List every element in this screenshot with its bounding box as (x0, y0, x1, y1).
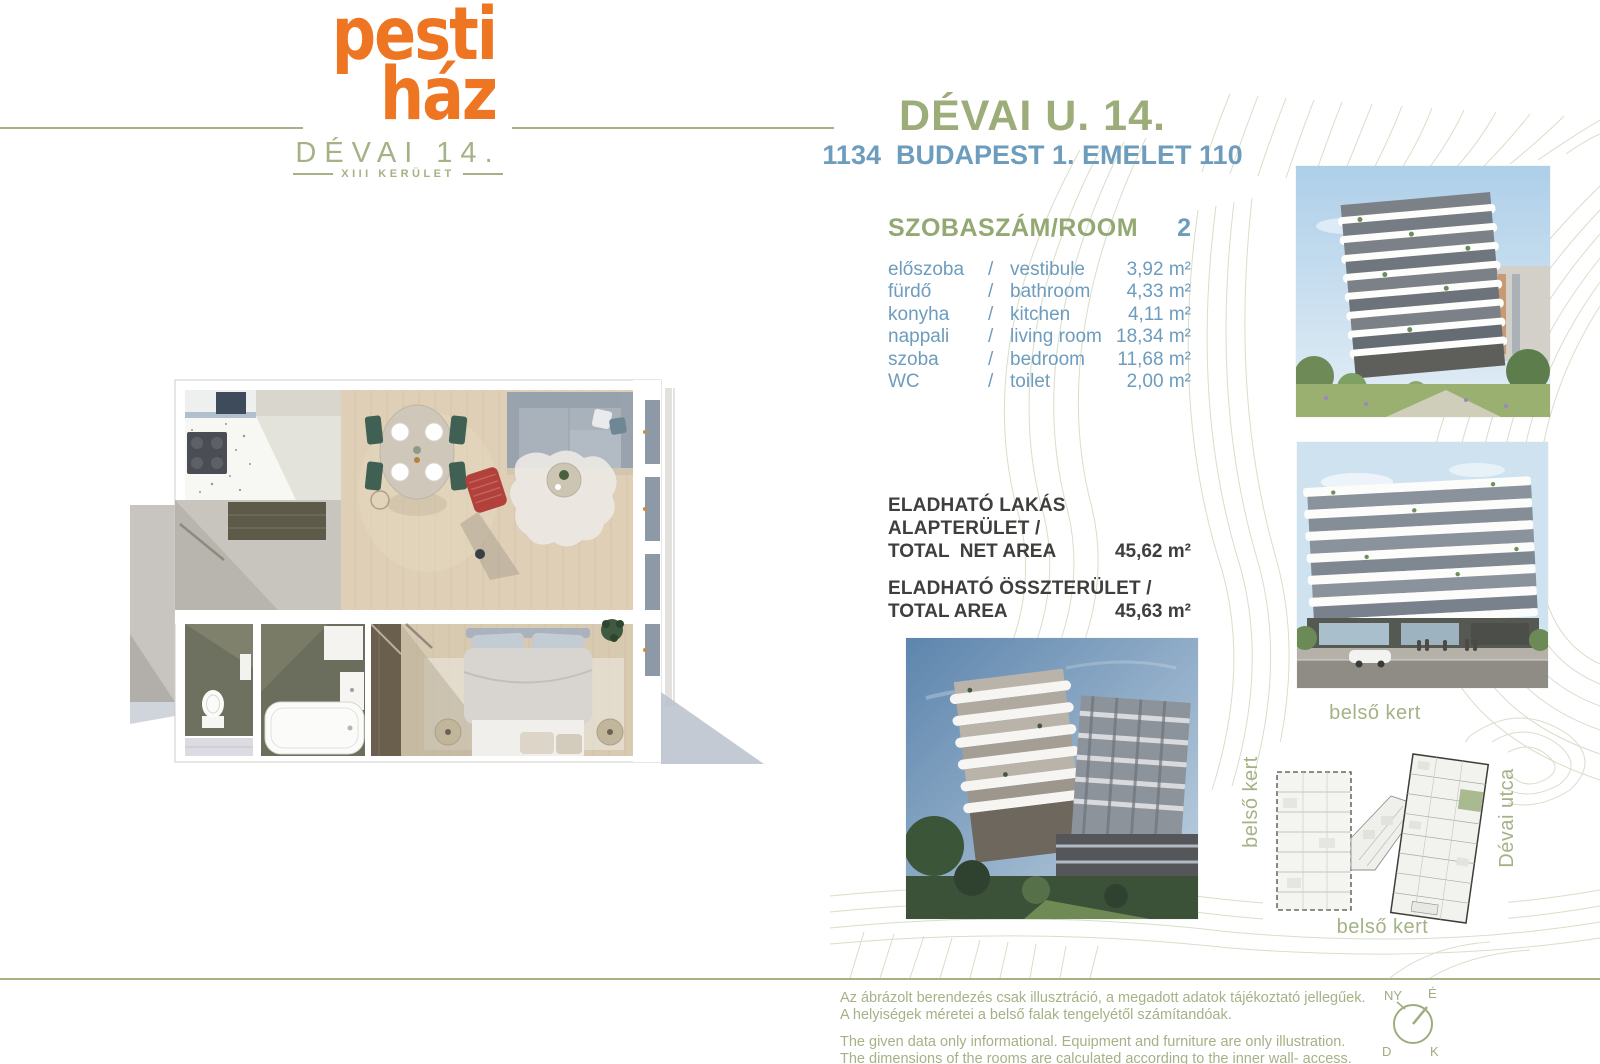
building-street-render (1297, 442, 1548, 688)
footer-disclaimer-en: The given data only informational. Equip… (840, 1034, 1400, 1064)
page-subtitle: 1134 BUDAPEST 1. EMELET 110 (790, 140, 1275, 171)
room-table: SZOBASZÁM/ROOM 2 előszoba / vestibule 3,… (888, 214, 1191, 393)
total-area-label-en: TOTAL AREA (888, 600, 1008, 623)
room-name-en: toilet (1010, 371, 1107, 393)
room-name-hu: előszoba (888, 259, 988, 281)
siteplan-label-top: belső kert (1290, 702, 1460, 725)
room-name-hu: WC (888, 371, 988, 393)
room-area: 11,68 m² (1107, 349, 1191, 371)
building-garden-render (1296, 166, 1550, 417)
siteplan-label-right: Dévai utca (1496, 734, 1519, 902)
total-area-label-hu: ELADHATÓ ÖSSZTERÜLET / (888, 577, 1191, 600)
logo-district: XIII KERÜLET (293, 168, 503, 180)
area-totals: ELADHATÓ LAKÁS ALAPTERÜLET / TOTAL NET A… (888, 494, 1191, 637)
district-rule-right (463, 173, 503, 175)
table-row: WC / toilet 2,00 m² (888, 371, 1191, 393)
header-rule-left (0, 127, 303, 129)
logo-district-label: XIII KERÜLET (341, 168, 455, 180)
compass-se-label: K (1430, 1044, 1439, 1059)
compass-sw-label: D (1382, 1044, 1391, 1059)
brand-logo: pesti ház (300, 0, 496, 118)
separator: / (988, 326, 1010, 348)
separator: / (988, 349, 1010, 371)
room-count-value: 2 (1177, 214, 1191, 243)
footer-rule (0, 978, 1600, 980)
building-dusk-render (906, 638, 1198, 919)
page-title: DÉVAI U. 14. (830, 92, 1235, 141)
siteplan-keyplan (1263, 742, 1508, 927)
footer-en-line2: The dimensions of the rooms are calculat… (840, 1051, 1400, 1064)
net-area-value: 45,62 m² (1115, 540, 1191, 563)
footer-hu-line1: Az ábrázolt berendezés csak illusztráció… (840, 990, 1400, 1007)
room-name-en: bathroom (1010, 281, 1107, 303)
total-area-value: 45,63 m² (1115, 600, 1191, 623)
net-area-group: ELADHATÓ LAKÁS ALAPTERÜLET / TOTAL NET A… (888, 494, 1191, 563)
siteplan-label-left: belső kert (1240, 722, 1263, 882)
compass-nw-label: NY (1384, 988, 1402, 1003)
header-rule-middle (512, 127, 834, 129)
brochure-page: pesti ház DÉVAI 14. XIII KERÜLET DÉVAI U… (0, 0, 1600, 1064)
separator: / (988, 259, 1010, 281)
footer-en-line1: The given data only informational. Equip… (840, 1034, 1400, 1051)
separator: / (988, 371, 1010, 393)
room-name-en: bedroom (1010, 349, 1107, 371)
compass-ne-label: É (1428, 986, 1437, 1001)
table-row: szoba / bedroom 11,68 m² (888, 349, 1191, 371)
room-name-en: living room (1010, 326, 1107, 348)
room-area: 2,00 m² (1107, 371, 1191, 393)
net-area-label-en: TOTAL NET AREA (888, 540, 1056, 563)
table-row: nappali / living room 18,34 m² (888, 326, 1191, 348)
footer-hu-line2: A helyiségek méretei a belső falak tenge… (840, 1007, 1400, 1024)
room-area: 4,11 m² (1107, 304, 1191, 326)
footer-disclaimer-hu: Az ábrázolt berendezés csak illusztráció… (840, 990, 1400, 1023)
room-name-en: kitchen (1010, 304, 1107, 326)
room-name-hu: konyha (888, 304, 988, 326)
room-name-hu: nappali (888, 326, 988, 348)
table-row: fürdő / bathroom 4,33 m² (888, 281, 1191, 303)
room-area: 4,33 m² (1107, 281, 1191, 303)
logo-subtitle: DÉVAI 14. (293, 137, 503, 170)
room-name-en: vestibule (1010, 259, 1107, 281)
compass-icon: NY É D K (1366, 984, 1466, 1062)
room-name-hu: fürdő (888, 281, 988, 303)
room-area: 3,92 m² (1107, 259, 1191, 281)
logo-word-haz: ház (300, 60, 496, 128)
room-table-header: SZOBASZÁM/ROOM 2 (888, 214, 1191, 243)
net-area-label-hu: ELADHATÓ LAKÁS ALAPTERÜLET / (888, 494, 1191, 540)
room-area: 18,34 m² (1107, 326, 1191, 348)
total-area-group: ELADHATÓ ÖSSZTERÜLET / TOTAL AREA 45,63 … (888, 577, 1191, 623)
district-rule-left (293, 173, 333, 175)
floorplan-image (128, 372, 764, 768)
siteplan-label-bottom: belső kert (1295, 916, 1470, 939)
room-count-label: SZOBASZÁM/ROOM (888, 214, 1138, 243)
room-name-hu: szoba (888, 349, 988, 371)
table-row: előszoba / vestibule 3,92 m² (888, 259, 1191, 281)
separator: / (988, 304, 1010, 326)
table-row: konyha / kitchen 4,11 m² (888, 304, 1191, 326)
separator: / (988, 281, 1010, 303)
